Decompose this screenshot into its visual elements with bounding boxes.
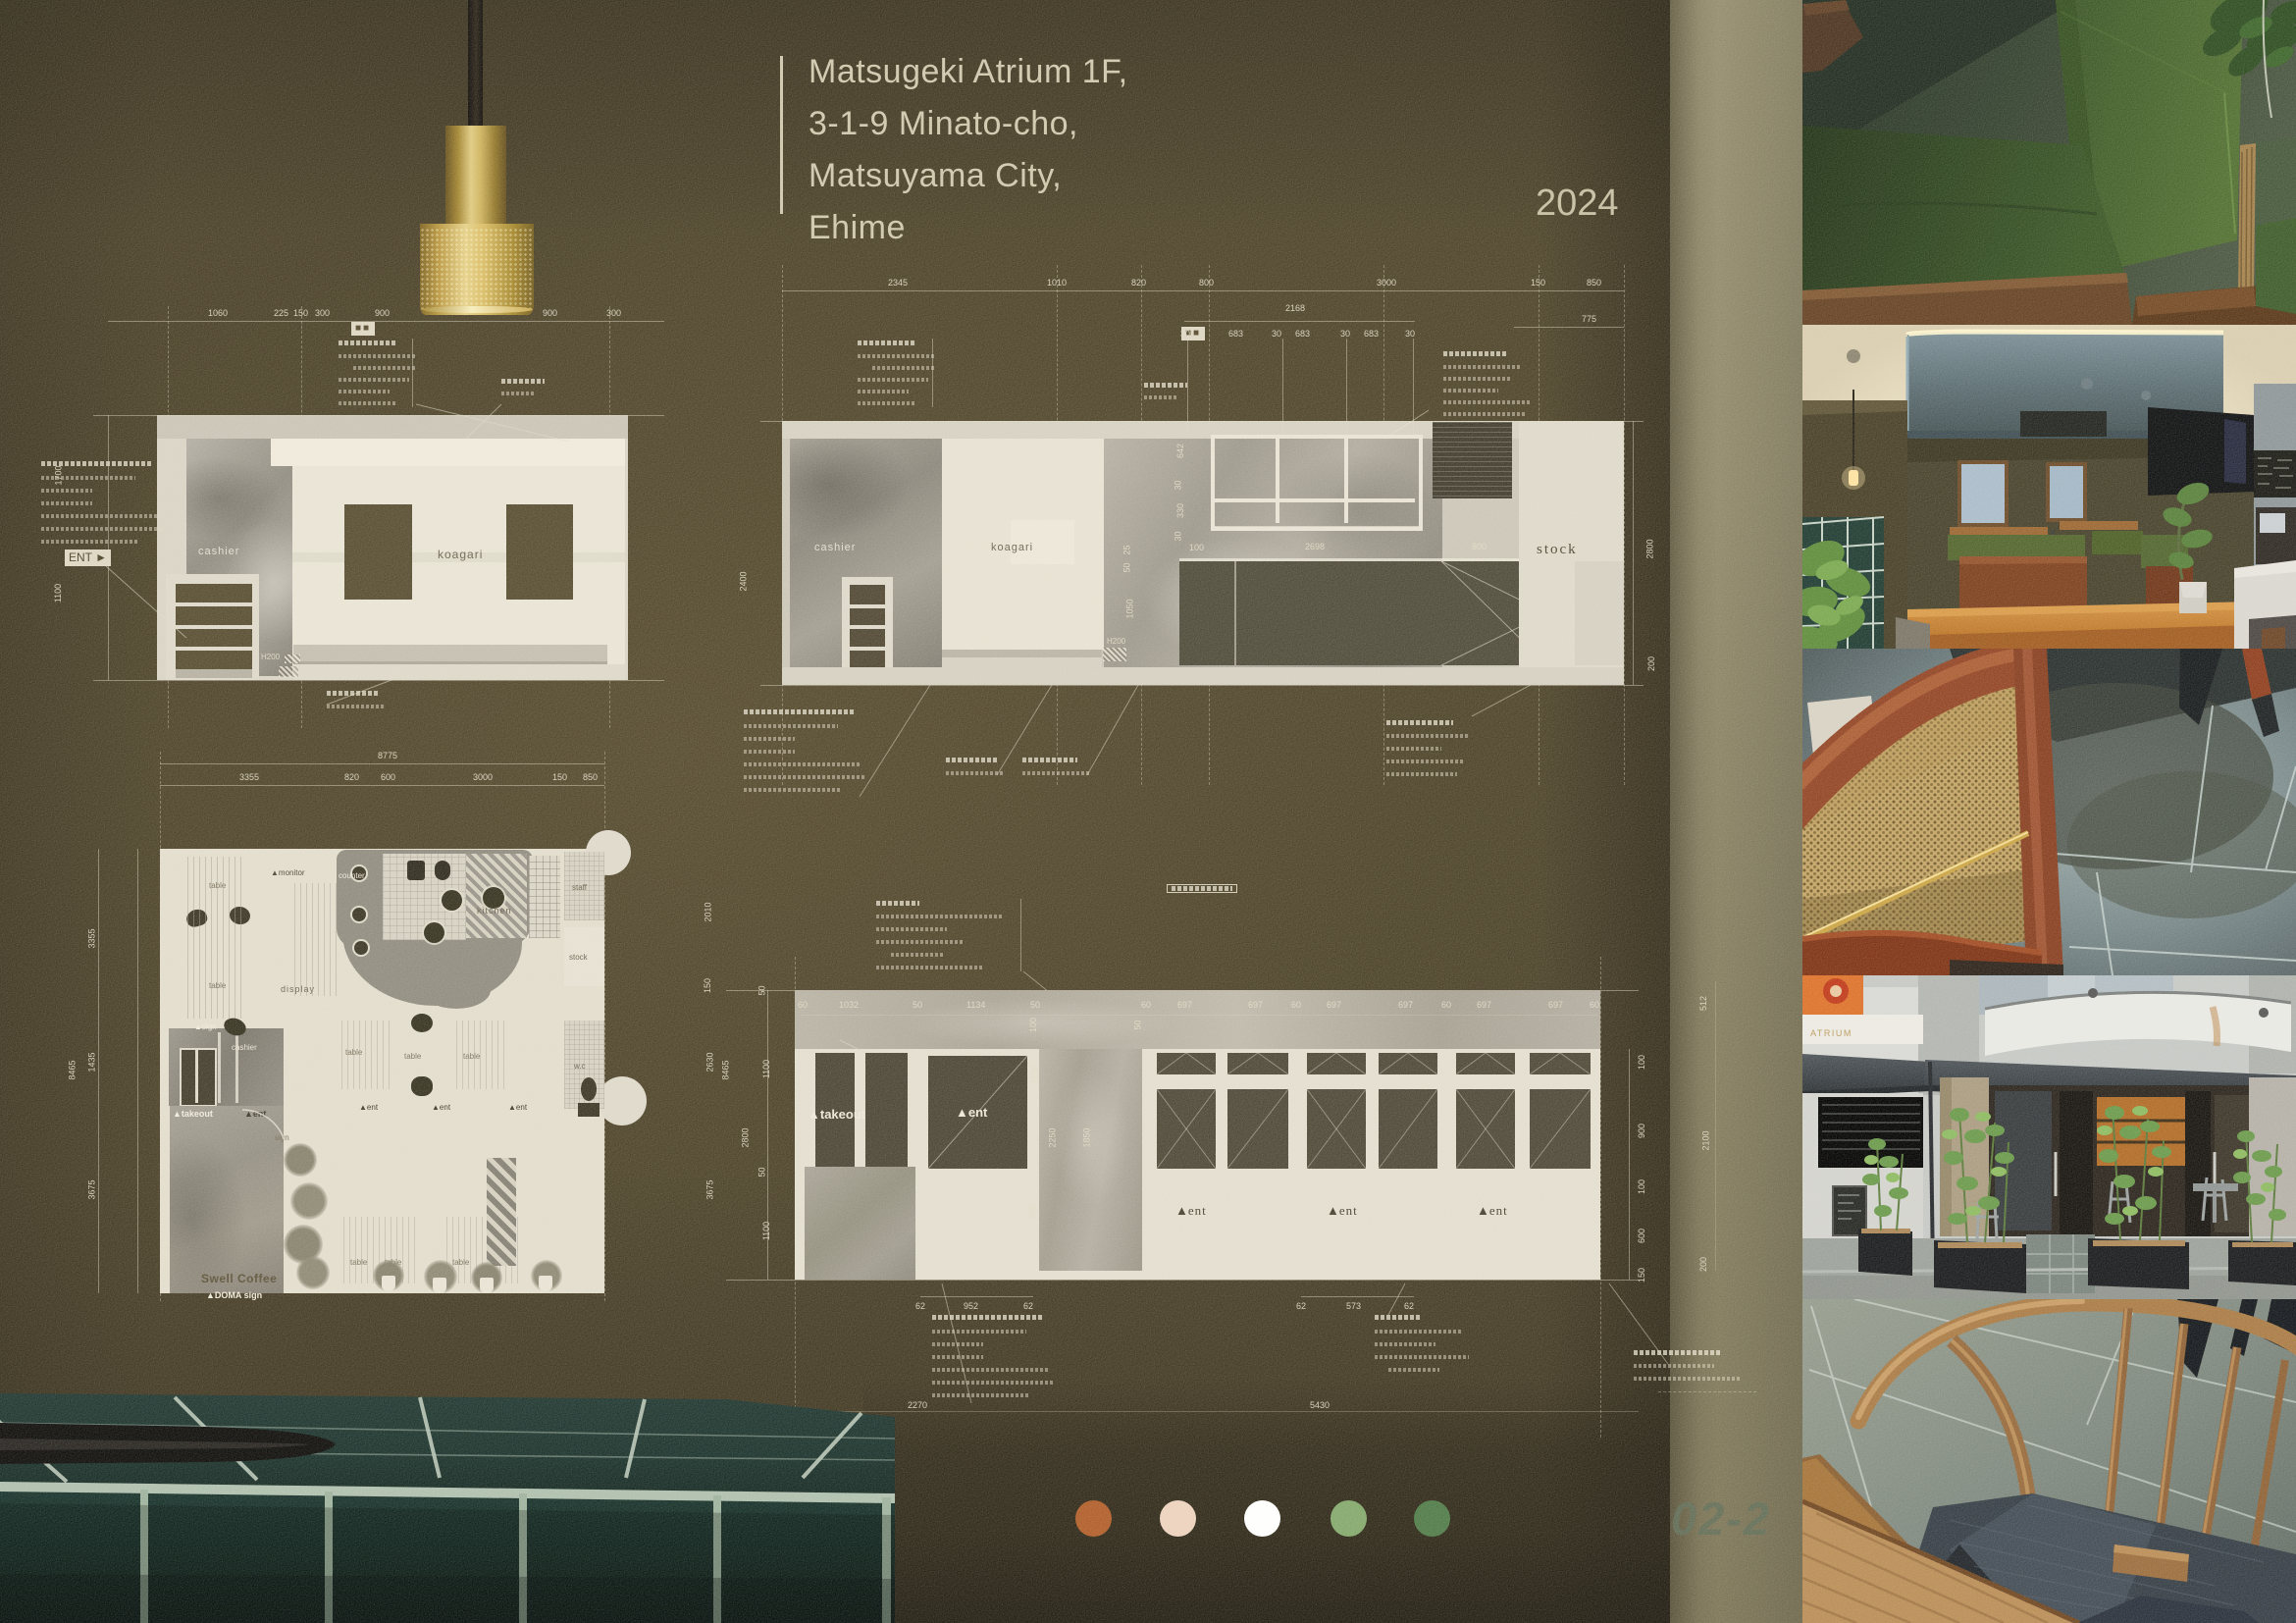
svg-text:ATRIUM: ATRIUM bbox=[1810, 1028, 1852, 1038]
